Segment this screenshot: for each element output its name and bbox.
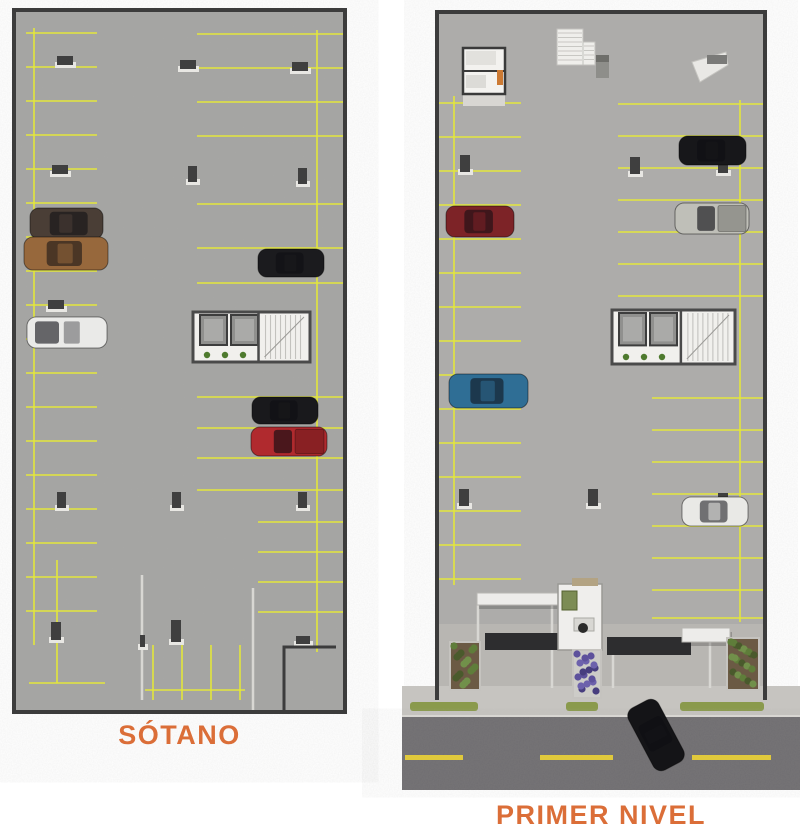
column [57,56,73,65]
driveway-ramp [485,633,560,650]
elevator-stairs-core [193,312,310,362]
lane-marking [692,755,771,760]
sotano-label: SÓTANO [14,720,345,751]
blue-sedan [449,374,528,408]
column [296,636,310,644]
column [171,620,181,642]
column [298,168,307,184]
silver-pickup [675,203,749,234]
grass-strip [410,702,478,711]
green-planter [450,642,480,690]
plant [222,352,228,358]
column [459,489,469,506]
black-sedan-top [679,136,746,165]
green-planter [727,638,759,690]
bronze-sedan [24,237,108,270]
flower-planter [573,650,601,698]
elevator-stairs-core [612,310,735,364]
column [57,492,66,508]
column [172,492,181,508]
plant [659,354,665,360]
plant [204,352,210,358]
driveway-ramp [607,637,691,655]
floor-plans-page: SÓTANO PRIMER NIVEL [0,0,800,835]
staircase [557,29,583,65]
furniture [466,51,496,65]
plans-canvas [0,0,800,835]
column [630,157,640,174]
black-sedan-mid [252,397,318,424]
column [460,155,470,172]
grass-strip [566,702,598,711]
furniture [497,70,503,85]
plant [623,354,629,360]
column [180,60,196,69]
booth-window [562,591,577,610]
brown-suv [30,208,103,239]
furniture [466,75,486,88]
guard-booth [558,578,602,650]
grass-strip [680,702,764,711]
plant [641,354,647,360]
lane-marking [405,755,463,760]
black-sedan-right [258,249,324,277]
column [188,166,197,182]
entry-canopy [682,628,730,642]
white-van [27,317,107,348]
lane-marking [540,755,613,760]
booth-chair [578,623,588,633]
column [52,165,68,174]
column [51,622,61,640]
column [48,300,64,309]
plant [240,352,246,358]
entry-canopy [477,593,561,605]
primer-nivel-plan [402,12,800,790]
storage-room [463,48,505,106]
column [140,635,145,647]
column [588,489,598,506]
staircase [583,42,595,65]
primer-nivel-label: PRIMER NIVEL [402,800,800,831]
column [298,492,307,508]
darkred-sedan [446,206,514,237]
sotano-plan [14,10,345,712]
column [292,62,308,71]
white-sedan [682,497,748,526]
red-pickup [251,427,327,456]
